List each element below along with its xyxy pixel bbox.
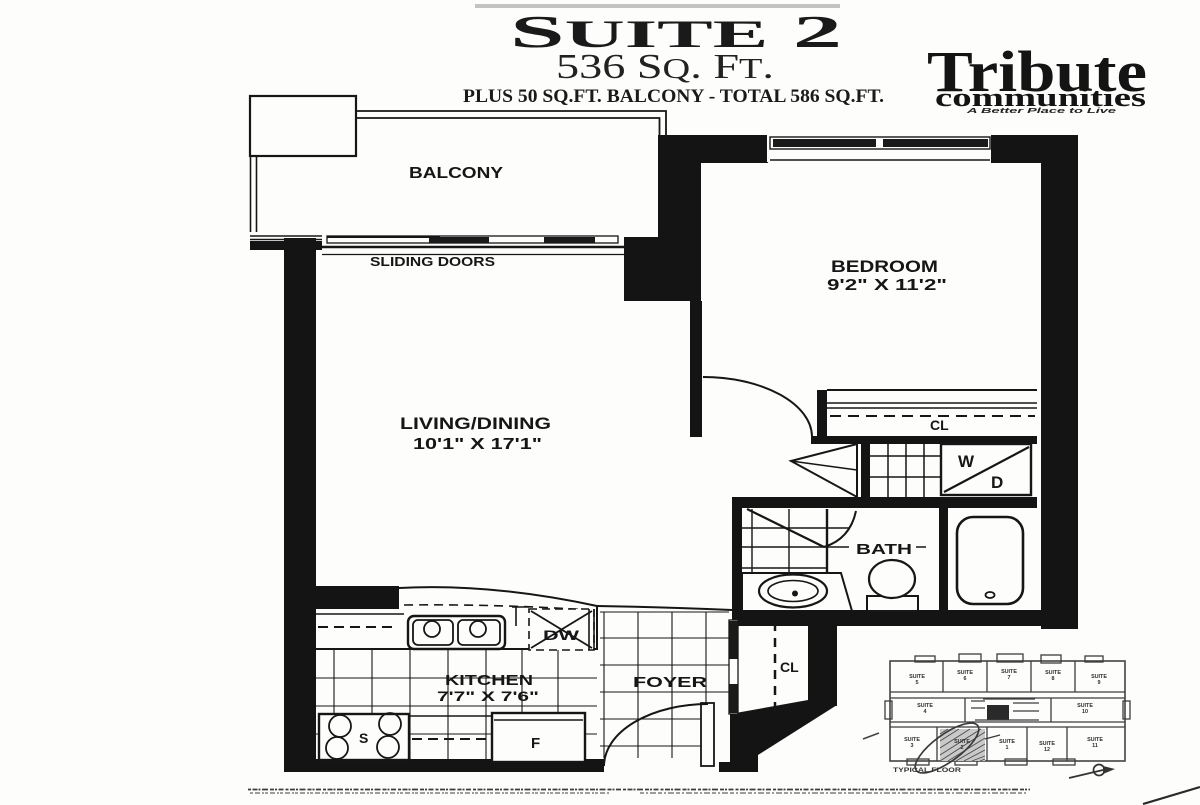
svg-text:TYPICAL FLOOR: TYPICAL FLOOR [893,767,962,774]
svg-text:D: D [991,473,1003,492]
svg-text:6: 6 [964,676,967,682]
svg-text:3: 3 [911,743,914,749]
svg-text:11: 11 [1092,743,1098,749]
svg-text:KITCHEN: KITCHEN [445,672,533,689]
svg-text:4: 4 [924,709,927,715]
svg-text:DW: DW [543,627,580,643]
svg-text:BALCONY: BALCONY [409,165,503,182]
svg-text:S: S [359,730,368,746]
svg-text:1: 1 [1006,745,1009,751]
svg-text:PLUS 50 SQ.FT. BALCONY - TOTAL: PLUS 50 SQ.FT. BALCONY - TOTAL 586 SQ.FT… [463,86,884,107]
svg-text:BATH: BATH [856,541,912,558]
svg-text:BEDROOM: BEDROOM [831,257,938,276]
svg-text:12: 12 [1044,747,1050,753]
svg-text:F: F [531,735,540,752]
svg-text:SLIDING DOORS: SLIDING DOORS [370,255,495,269]
svg-text:7'7" X 7'6": 7'7" X 7'6" [437,688,539,704]
svg-text:9: 9 [1098,680,1101,686]
svg-text:CL: CL [930,417,949,433]
svg-text:2: 2 [961,745,964,751]
svg-text:5: 5 [916,680,919,686]
svg-text:FOYER: FOYER [633,674,707,691]
svg-text:7: 7 [1008,675,1011,681]
svg-text:W: W [958,452,975,471]
svg-text:A Better Place to Live: A Better Place to Live [965,108,1116,115]
svg-text:10: 10 [1082,709,1088,715]
svg-text:8: 8 [1052,676,1055,682]
svg-text:9'2" X 11'2": 9'2" X 11'2" [827,277,947,294]
svg-text:CL: CL [780,659,799,675]
svg-text:10'1" X 17'1": 10'1" X 17'1" [413,436,542,453]
svg-text:LIVING/DINING: LIVING/DINING [400,414,551,433]
svg-text:536 SQ. FT.: 536 SQ. FT. [556,47,774,86]
